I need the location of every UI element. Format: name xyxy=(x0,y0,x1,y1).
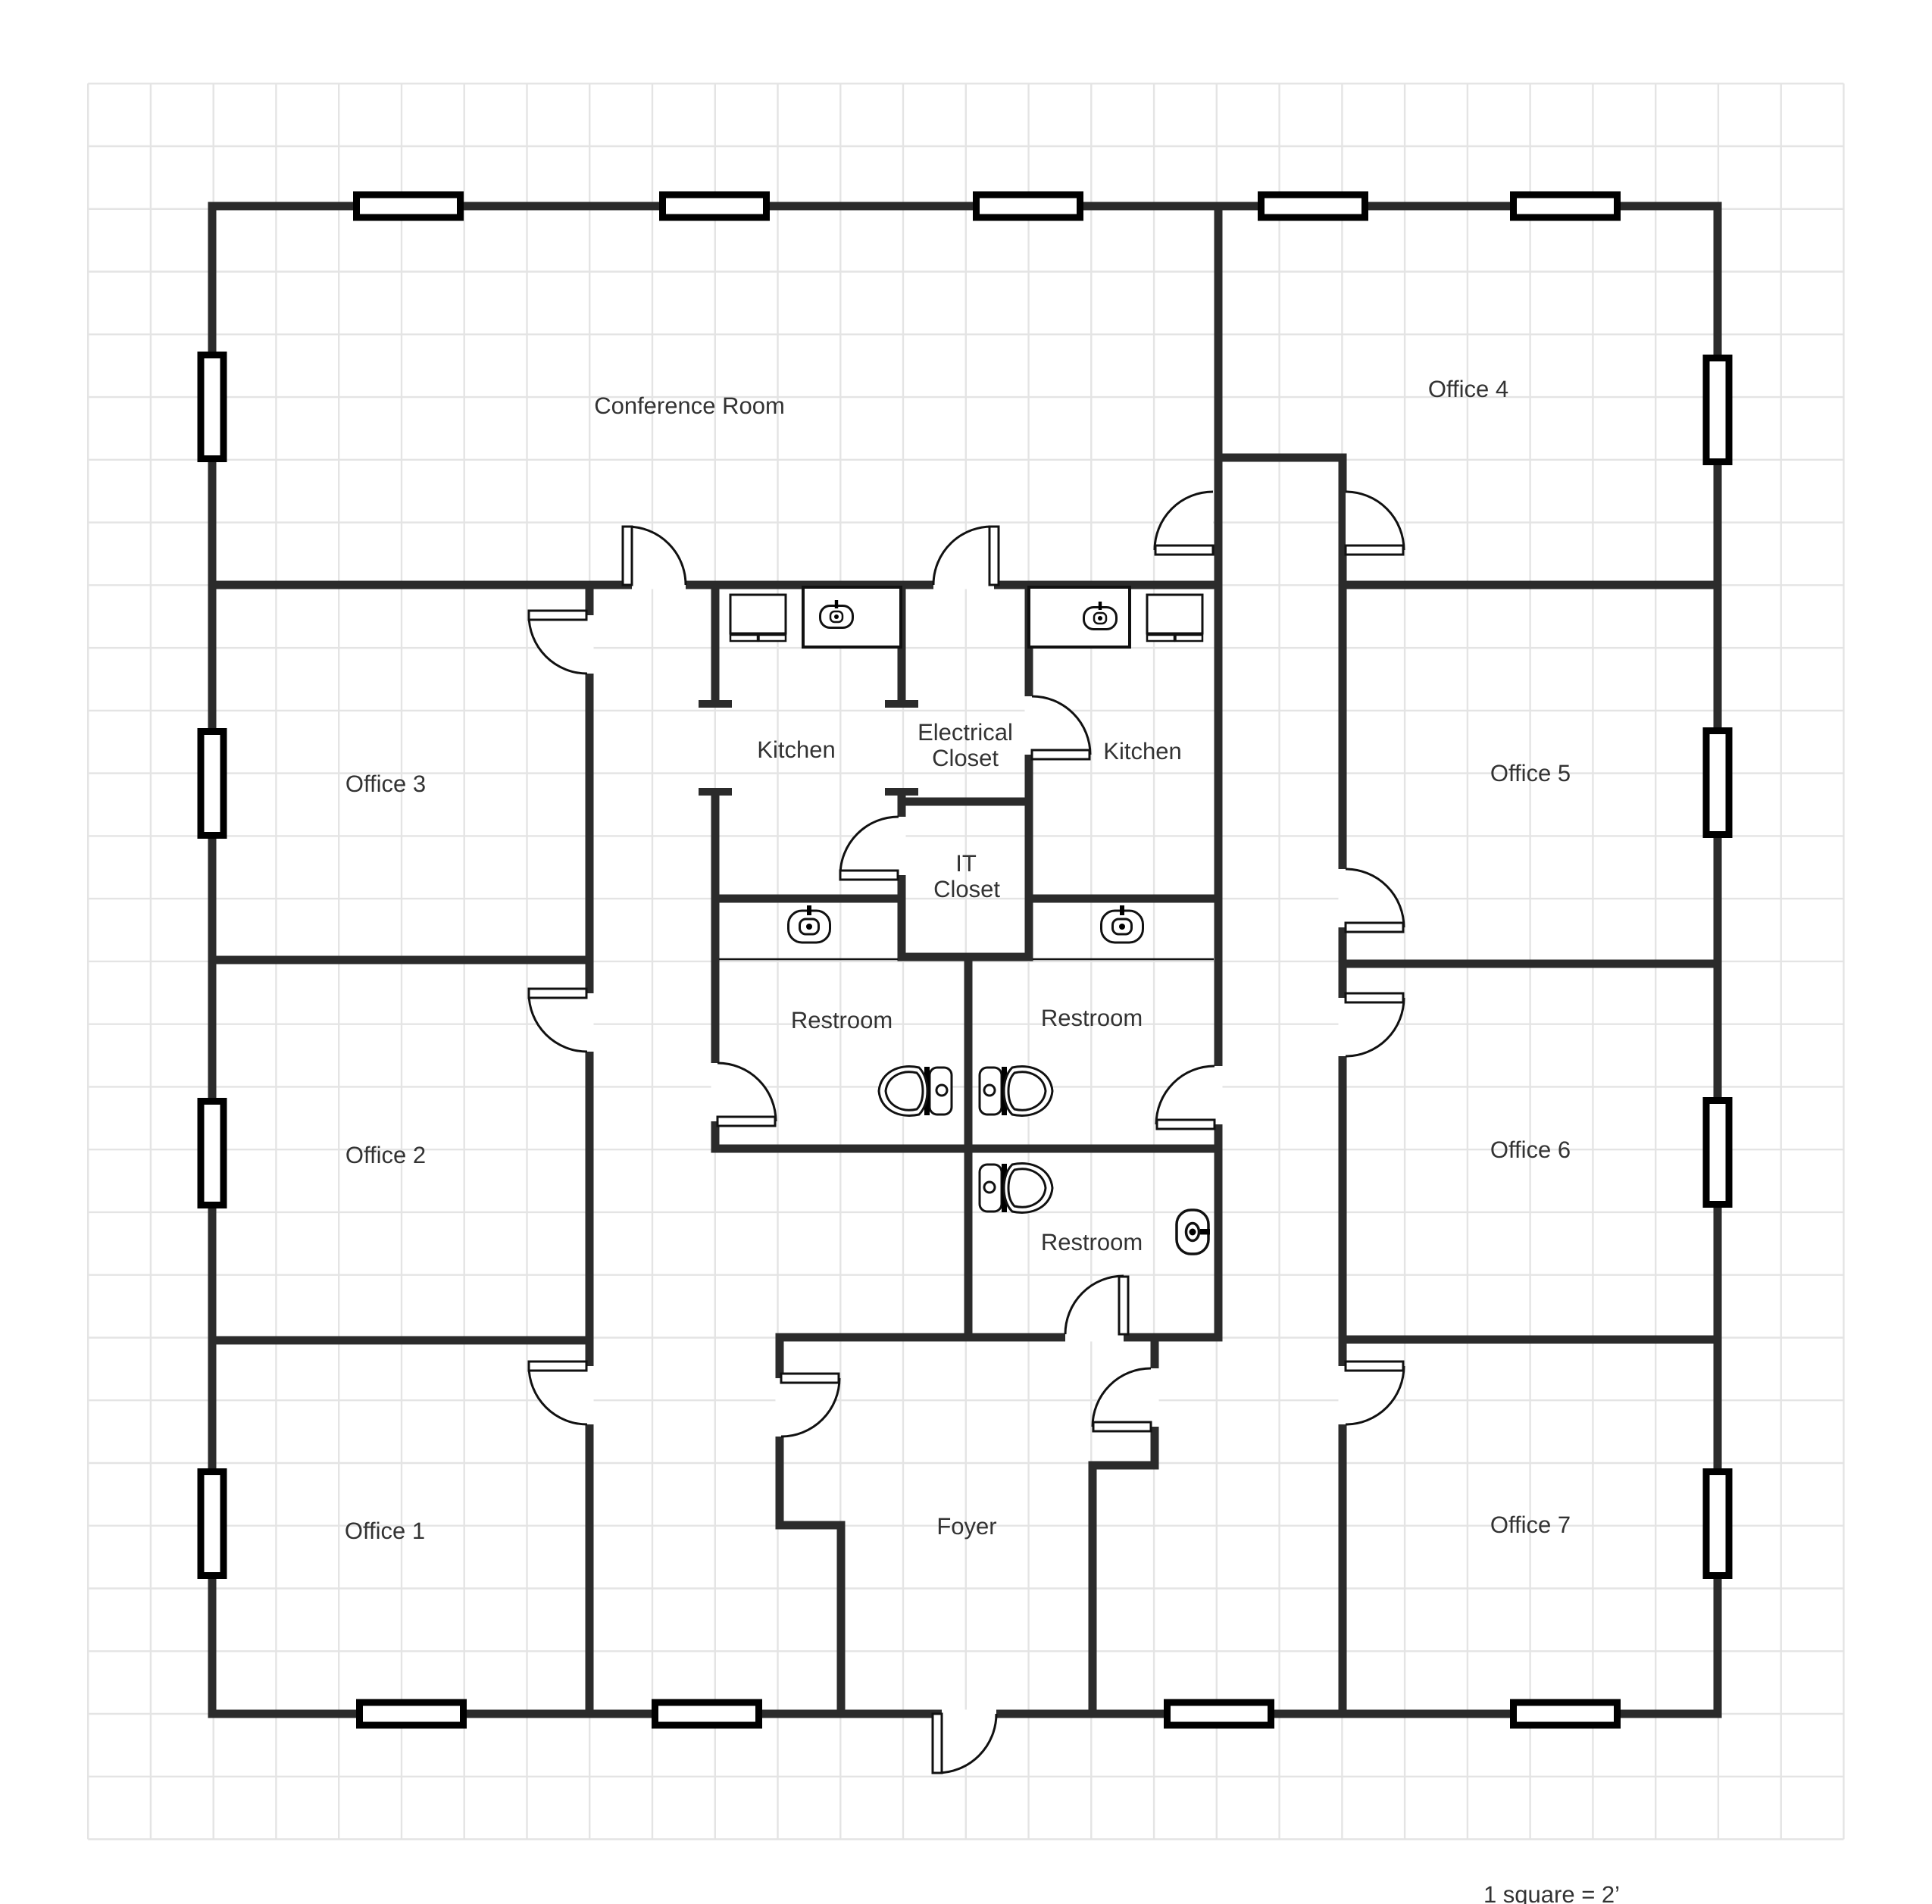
svg-text:Office 4: Office 4 xyxy=(1428,376,1508,402)
svg-text:Office 3: Office 3 xyxy=(345,771,426,797)
svg-text:Office 6: Office 6 xyxy=(1490,1136,1571,1163)
svg-text:Electrical: Electrical xyxy=(918,719,1013,746)
svg-text:Office 2: Office 2 xyxy=(345,1142,426,1168)
svg-text:Restroom: Restroom xyxy=(1041,1229,1143,1255)
svg-text:Closet: Closet xyxy=(933,876,1000,902)
svg-text:Closet: Closet xyxy=(932,745,999,771)
svg-text:1 square = 2’: 1 square = 2’ xyxy=(1483,1881,1620,1904)
svg-text:Office 5: Office 5 xyxy=(1490,760,1571,786)
svg-text:Kitchen: Kitchen xyxy=(757,736,835,763)
svg-text:IT: IT xyxy=(955,850,977,877)
svg-text:Foyer: Foyer xyxy=(936,1513,996,1540)
svg-text:Restroom: Restroom xyxy=(791,1007,893,1033)
svg-text:Restroom: Restroom xyxy=(1041,1005,1143,1031)
svg-text:Office 7: Office 7 xyxy=(1490,1512,1571,1538)
svg-text:Conference Room: Conference Room xyxy=(594,392,785,419)
svg-text:Office 1: Office 1 xyxy=(345,1518,425,1544)
svg-text:Kitchen: Kitchen xyxy=(1103,738,1181,764)
